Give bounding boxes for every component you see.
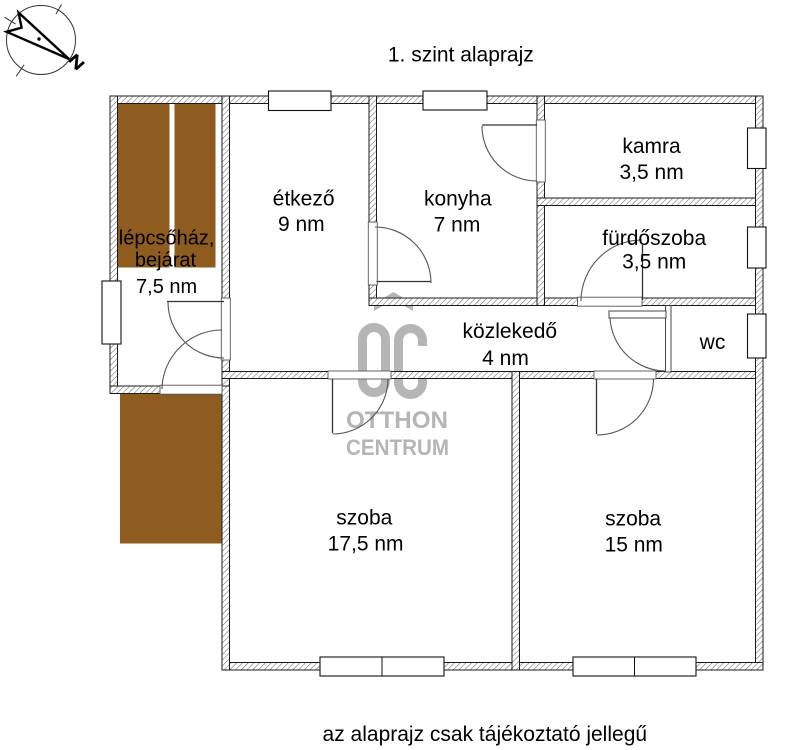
- svg-text:szoba: szoba: [336, 507, 392, 530]
- svg-text:bejárat: bejárat: [135, 250, 197, 272]
- svg-text:3,5 nm: 3,5 nm: [622, 251, 686, 274]
- svg-text:4 nm: 4 nm: [482, 347, 529, 370]
- svg-text:7 nm: 7 nm: [434, 214, 481, 237]
- svg-text:szoba: szoba: [605, 508, 661, 531]
- svg-text:közlekedő: közlekedő: [463, 320, 558, 343]
- svg-text:OTTHON: OTTHON: [346, 407, 448, 434]
- svg-text:17,5 nm: 17,5 nm: [328, 533, 404, 556]
- svg-text:9 nm: 9 nm: [278, 213, 325, 236]
- svg-text:3,5 nm: 3,5 nm: [619, 161, 683, 184]
- svg-text:konyha: konyha: [424, 188, 492, 211]
- svg-text:lépcsőház,: lépcsőház,: [119, 228, 215, 250]
- svg-text:CENTRUM: CENTRUM: [346, 435, 449, 460]
- svg-text:kamra: kamra: [622, 135, 681, 158]
- svg-text:1. szint alaprajz: 1. szint alaprajz: [388, 44, 534, 67]
- svg-text:fürdőszoba: fürdőszoba: [602, 227, 706, 250]
- svg-text:7,5 nm: 7,5 nm: [136, 276, 197, 298]
- svg-text:15 nm: 15 nm: [605, 534, 663, 557]
- svg-text:wc: wc: [699, 331, 726, 354]
- svg-text:az alaprajz csak tájékoztató j: az alaprajz csak tájékoztató jellegű: [323, 723, 648, 746]
- svg-text:étkező: étkező: [273, 188, 335, 211]
